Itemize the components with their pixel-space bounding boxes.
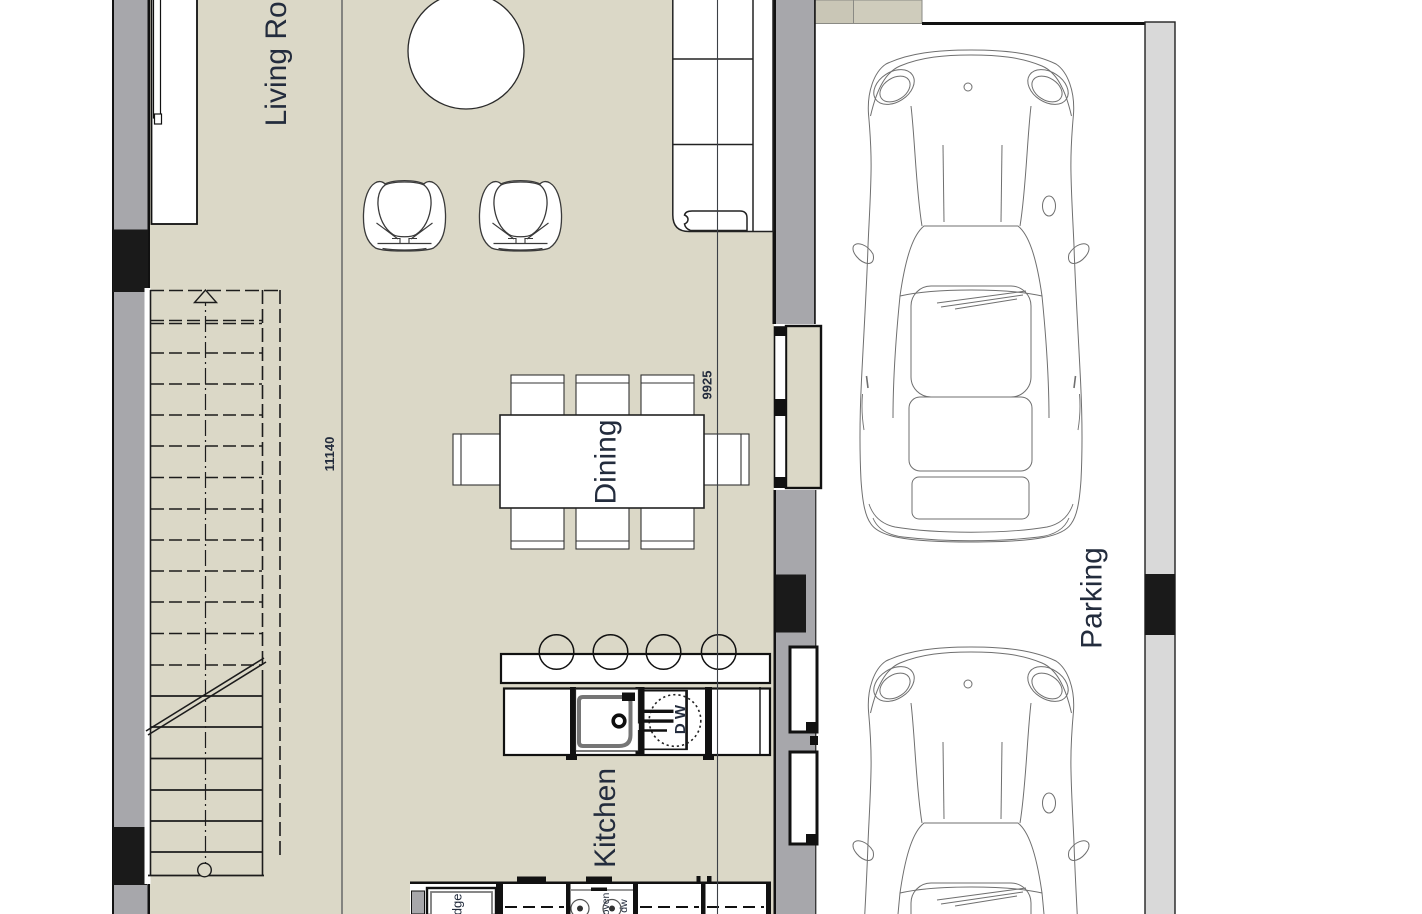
svg-text:Kitchen: Kitchen — [589, 768, 622, 868]
svg-text:Living Room: Living Room — [260, 0, 293, 126]
svg-text:dw: dw — [618, 899, 630, 913]
svg-text:oven: oven — [600, 892, 612, 914]
svg-text:9925: 9925 — [700, 371, 715, 400]
svg-text:Parking: Parking — [1076, 547, 1109, 649]
svg-text:Dining: Dining — [590, 419, 623, 504]
svg-text:Fridge: Fridge — [450, 894, 465, 914]
svg-text:D W: D W — [672, 704, 689, 734]
svg-text:11140: 11140 — [322, 437, 337, 472]
